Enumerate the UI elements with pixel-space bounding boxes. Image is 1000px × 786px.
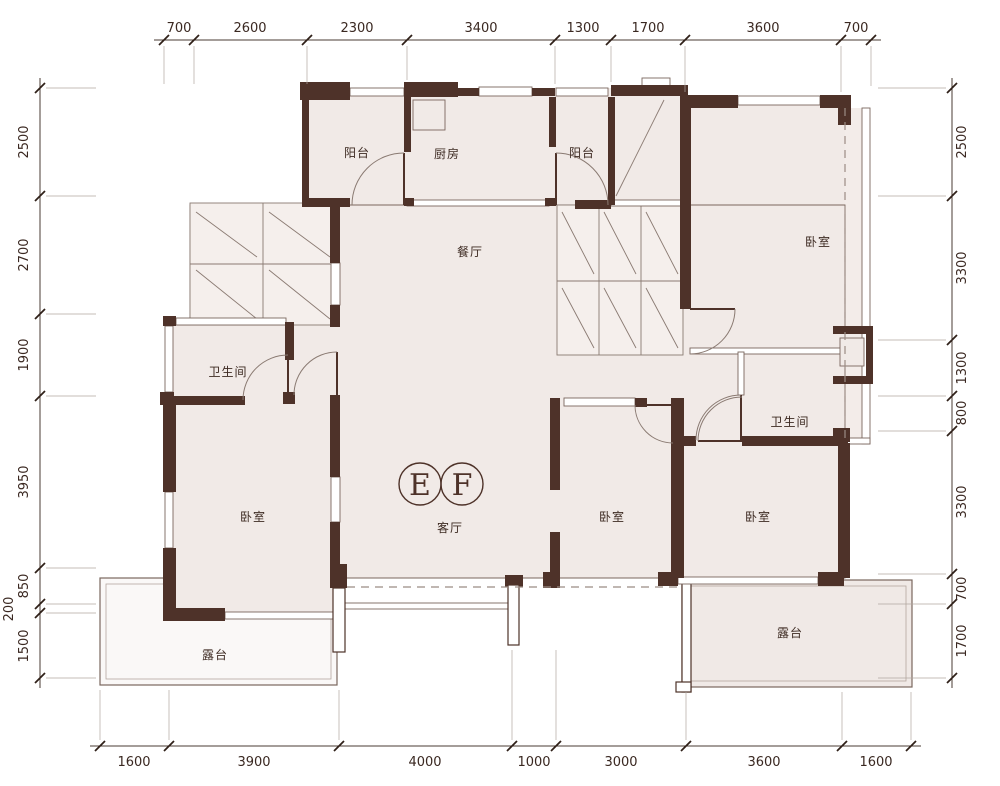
dim-right-3: 800 xyxy=(955,401,970,426)
dim-right-4: 3300 xyxy=(955,485,970,518)
dim-top-2: 2300 xyxy=(340,21,373,36)
room-label-bedroom-top-right: 卧室 xyxy=(805,234,831,249)
room-label-terrace-right: 露台 xyxy=(777,625,803,640)
dim-bottom-3: 1000 xyxy=(517,755,550,770)
window-bay-left xyxy=(190,203,337,325)
dim-left-3: 3950 xyxy=(17,465,32,498)
dim-top-6: 3600 xyxy=(746,21,779,36)
dim-left-1: 2700 xyxy=(17,238,32,271)
dim-left-2: 1900 xyxy=(17,338,32,371)
room-label-balcony-left: 阳台 xyxy=(344,145,370,160)
dim-bottom-4: 3000 xyxy=(604,755,637,770)
dim-bottom-5: 3600 xyxy=(747,755,780,770)
dim-right-5: 700 xyxy=(955,577,970,602)
dim-top-3: 3400 xyxy=(464,21,497,36)
floor-plan-page: 阳台 厨房 阳台 餐厅 卧室 卫生间 卫生间 客厅 卧室 卧室 卧室 露台 露台… xyxy=(0,0,1000,786)
dim-bottom-6: 1600 xyxy=(859,755,892,770)
dim-top-0: 700 xyxy=(167,21,192,36)
room-label-bedroom-right: 卧室 xyxy=(745,509,771,524)
dim-bottom-0: 1600 xyxy=(117,755,150,770)
dim-left-6: 1500 xyxy=(17,629,32,662)
dim-top-4: 1300 xyxy=(566,21,599,36)
dim-right-2: 1300 xyxy=(955,351,970,384)
dimension-labels-bottom: 1600 3900 4000 1000 3000 3600 1600 xyxy=(117,755,892,770)
room-label-dining: 餐厅 xyxy=(457,244,483,259)
room-label-kitchen: 厨房 xyxy=(434,146,460,161)
dim-top-1: 2600 xyxy=(233,21,266,36)
dim-right-1: 3300 xyxy=(955,251,970,284)
room-label-living: 客厅 xyxy=(437,520,463,535)
room-label-balcony-right: 阳台 xyxy=(569,145,595,160)
window-bay-center xyxy=(557,205,683,355)
dim-bottom-1: 3900 xyxy=(237,755,270,770)
room-label-terrace-left: 露台 xyxy=(202,647,228,662)
dim-right-6: 1700 xyxy=(955,624,970,657)
dim-left-4: 850 xyxy=(17,574,32,599)
floor-plan-drawing: 阳台 厨房 阳台 餐厅 卧室 卫生间 卫生间 客厅 卧室 卧室 卧室 露台 露台… xyxy=(0,0,1000,786)
dim-left-0: 2500 xyxy=(17,125,32,158)
dim-right-0: 2500 xyxy=(955,125,970,158)
columns xyxy=(333,585,519,652)
dimension-labels-left: 2500 2700 1900 3950 850 200 1500 xyxy=(2,125,32,662)
room-label-bedroom-mid: 卧室 xyxy=(599,509,625,524)
unit-e-letter: E xyxy=(409,468,431,503)
dim-left-5: 200 xyxy=(2,597,17,622)
room-label-bath-left: 卫生间 xyxy=(208,365,247,379)
unit-f-letter: F xyxy=(452,468,473,503)
dim-bottom-2: 4000 xyxy=(408,755,441,770)
dimension-labels-top: 700 2600 2300 3400 1300 1700 3600 700 xyxy=(167,21,869,36)
room-label-bedroom-left: 卧室 xyxy=(240,509,266,524)
dim-top-7: 700 xyxy=(844,21,869,36)
dim-top-5: 1700 xyxy=(631,21,664,36)
room-label-bath-right: 卫生间 xyxy=(770,415,809,429)
